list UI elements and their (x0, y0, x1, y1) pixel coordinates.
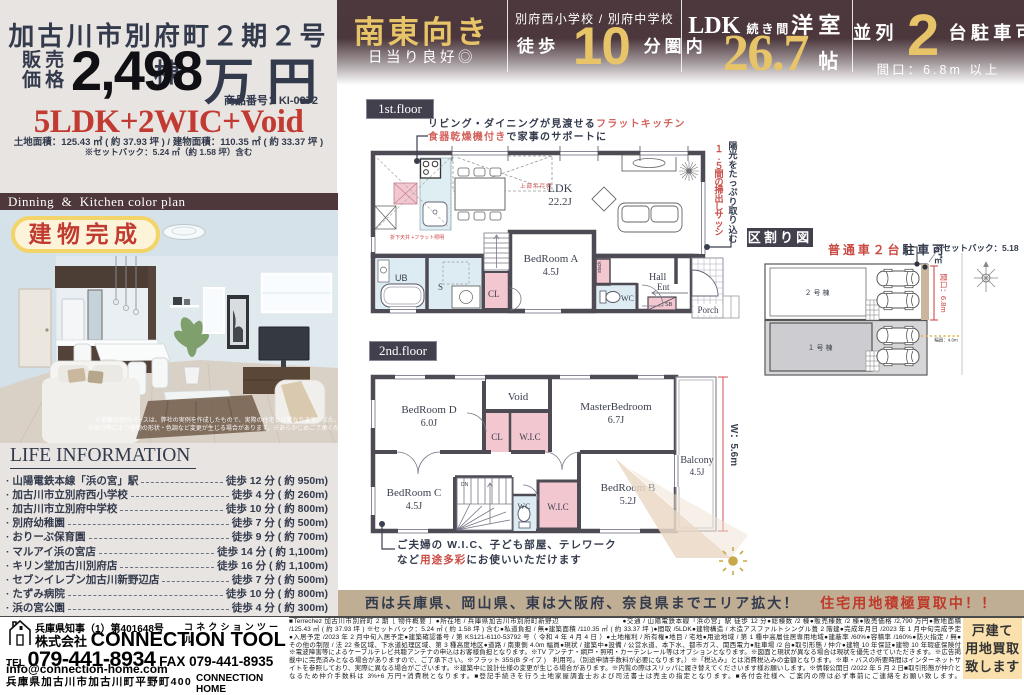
svg-text:LDK: LDK (548, 181, 573, 195)
svg-text:4.5J: 4.5J (543, 267, 560, 278)
svg-text:22.2J: 22.2J (548, 196, 572, 208)
svg-text:WC: WC (621, 294, 634, 303)
svg-text:5.2J: 5.2J (620, 496, 637, 507)
svg-text:CL: CL (488, 289, 500, 299)
svg-text:折下天井 +フラット照明: 折下天井 +フラット照明 (390, 234, 444, 241)
svg-text:幅員：4.0m: 幅員：4.0m (934, 337, 958, 344)
svg-text:SB: SB (665, 302, 673, 308)
svg-text:WC: WC (518, 502, 531, 511)
svg-text:DN: DN (461, 482, 469, 488)
svg-text:MasterBedroom: MasterBedroom (580, 401, 652, 413)
svg-text:4.5J: 4.5J (406, 501, 423, 512)
svg-text:W：5.6m: W：5.6m (728, 424, 739, 466)
svg-text:W.I.C: W.I.C (547, 502, 568, 512)
svg-text:※掲載の室内パースは、弊社の実例を作成したもので、実際の住宅: ※掲載の室内パースは、弊社の実例を作成したもので、実際の住宅とは異なります。また… (95, 416, 338, 424)
svg-text:Porch: Porch (698, 305, 719, 315)
svg-text:２号棟: ２号棟 (805, 288, 832, 297)
svg-text:stack: stack (597, 261, 603, 273)
svg-text:W.I.C: W.I.C (519, 432, 540, 442)
svg-text:BedRoom C: BedRoom C (387, 487, 442, 499)
svg-text:Ent: Ent (657, 282, 670, 292)
svg-text:6.0J: 6.0J (421, 418, 438, 429)
svg-text:6.7J: 6.7J (608, 415, 625, 426)
svg-text:S: S (438, 282, 443, 292)
svg-text:間口：6.8m: 間口：6.8m (939, 273, 948, 312)
svg-text:Void: Void (508, 391, 529, 403)
svg-text:CL: CL (491, 432, 503, 442)
svg-text:BedRoom A: BedRoom A (524, 253, 579, 265)
svg-text:BedRoom D: BedRoom D (401, 404, 456, 416)
svg-text:4.5J: 4.5J (690, 467, 705, 477)
svg-text:Balcony: Balcony (680, 455, 713, 466)
svg-text:１号棟: １号棟 (808, 343, 835, 352)
svg-text:UB: UB (395, 273, 408, 283)
svg-text:の部分等により建物の形状・色調など変更が生じる場合があります: の部分等により建物の形状・色調など変更が生じる場合があります。※あらかじめご了承… (88, 424, 338, 432)
